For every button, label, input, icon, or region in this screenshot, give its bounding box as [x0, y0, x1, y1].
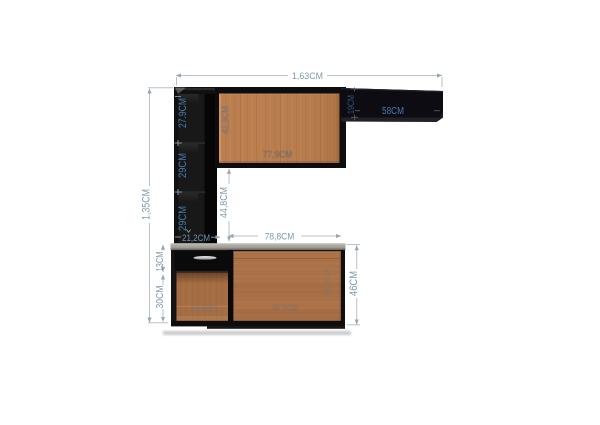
svg-text:13CM: 13CM	[155, 252, 166, 272]
svg-text:42,3CM: 42,3CM	[322, 269, 332, 297]
svg-text:46CM: 46CM	[348, 271, 360, 296]
svg-text:30,8CM: 30,8CM	[191, 304, 217, 314]
svg-text:77,9CM: 77,9CM	[263, 150, 293, 161]
svg-text:42,3CM: 42,3CM	[221, 106, 232, 134]
svg-text:1,63CM: 1,63CM	[292, 71, 323, 82]
svg-text:29CM: 29CM	[177, 206, 189, 231]
svg-text:58CM: 58CM	[382, 106, 404, 117]
svg-text:19CM: 19CM	[346, 95, 356, 114]
svg-text:21,2CM: 21,2CM	[182, 233, 210, 244]
svg-text:46,1CM: 46,1CM	[272, 303, 298, 313]
svg-text:44,8CM: 44,8CM	[218, 187, 230, 218]
svg-text:27.9CM: 27.9CM	[177, 98, 189, 128]
svg-text:29CM: 29CM	[177, 153, 189, 178]
svg-text:30CM: 30CM	[154, 286, 166, 309]
svg-text:78,8CM: 78,8CM	[265, 231, 295, 242]
svg-text:1,35CM: 1,35CM	[141, 189, 153, 220]
